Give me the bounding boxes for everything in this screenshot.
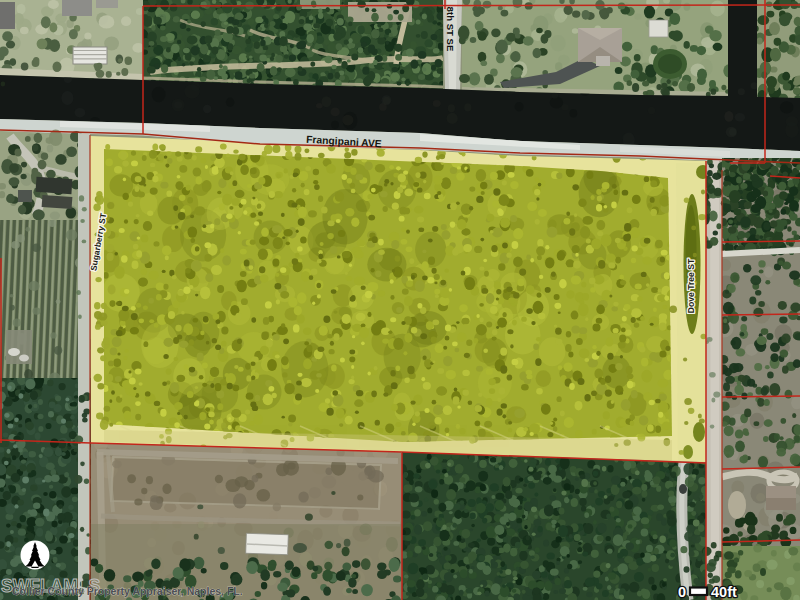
svg-text:8th ST SE: 8th ST SE [445,7,456,52]
svg-text:Dove Tree ST: Dove Tree ST [686,258,696,313]
svg-text:Collier County Property Apprai: Collier County Property Appraiser, Naple… [12,585,243,597]
svg-text:40ft: 40ft [711,584,737,600]
svg-text:0: 0 [678,584,686,600]
